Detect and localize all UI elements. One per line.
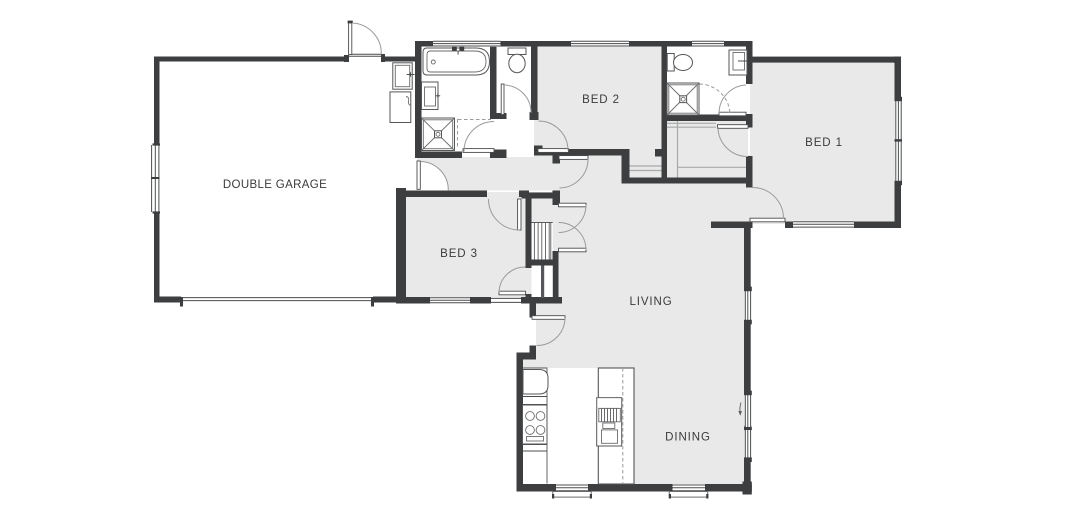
svg-text:LIVING: LIVING [629, 296, 672, 308]
svg-text:BED 1: BED 1 [805, 137, 843, 149]
svg-text:BED 2: BED 2 [582, 94, 620, 106]
svg-text:DOUBLE GARAGE: DOUBLE GARAGE [223, 179, 327, 191]
svg-text:BED 3: BED 3 [440, 248, 478, 260]
svg-text:DINING: DINING [665, 432, 711, 444]
